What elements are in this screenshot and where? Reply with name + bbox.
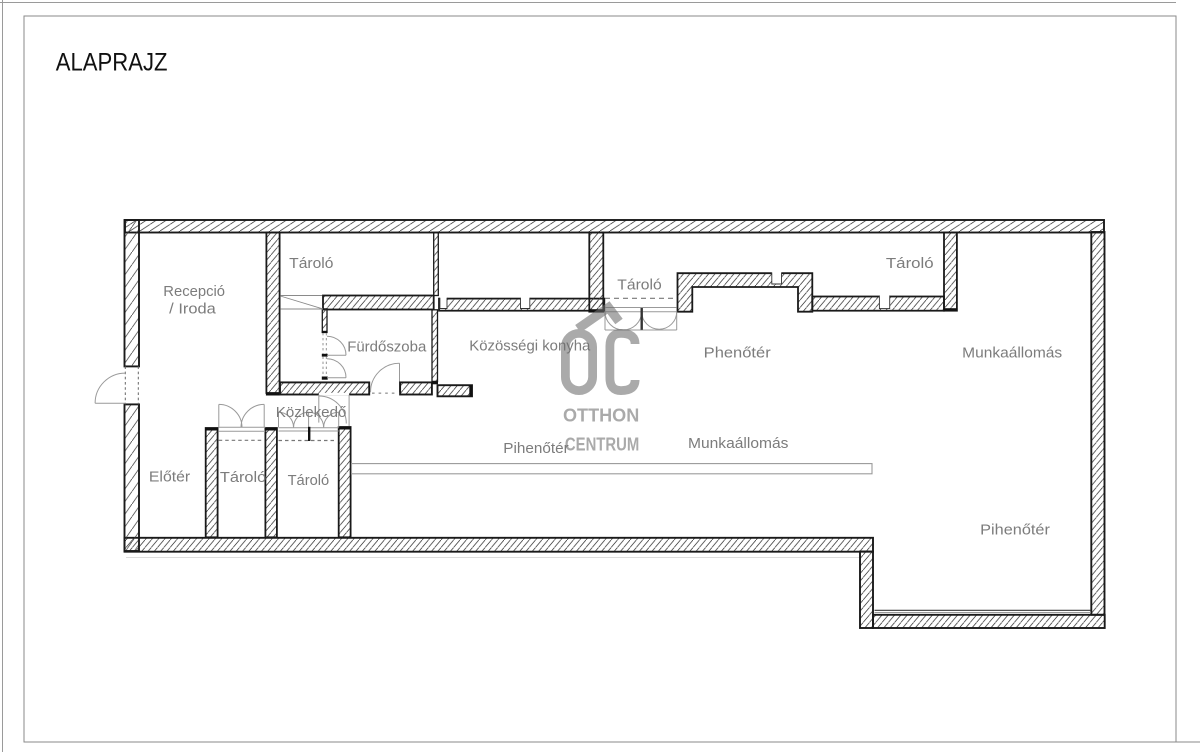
svg-text:Tároló: Tároló	[617, 276, 661, 293]
svg-text:Közlekedő: Közlekedő	[276, 404, 347, 421]
svg-text:Fürdőszoba: Fürdőszoba	[347, 339, 427, 356]
svg-text:OTTHON: OTTHON	[563, 405, 639, 425]
svg-text:Tároló: Tároló	[288, 472, 330, 489]
svg-text:CENTRUM: CENTRUM	[565, 434, 639, 454]
svg-text:Recepció: Recepció	[163, 283, 225, 300]
svg-text:Munkaállomás: Munkaállomás	[688, 435, 789, 452]
svg-text:Tároló: Tároló	[220, 469, 266, 486]
svg-text:Phenőtér: Phenőtér	[704, 345, 771, 362]
svg-text:Munkaállomás: Munkaállomás	[962, 345, 1062, 362]
svg-text:Előtér: Előtér	[149, 469, 190, 486]
svg-text:/ Iroda: / Iroda	[169, 300, 216, 317]
svg-text:Pihenőtér: Pihenőtér	[980, 522, 1050, 539]
svg-text:Tároló: Tároló	[289, 255, 333, 272]
svg-text:ALAPRAJZ: ALAPRAJZ	[56, 49, 168, 77]
svg-text:Pihenőtér: Pihenőtér	[503, 440, 568, 457]
svg-text:Tároló: Tároló	[886, 255, 934, 272]
